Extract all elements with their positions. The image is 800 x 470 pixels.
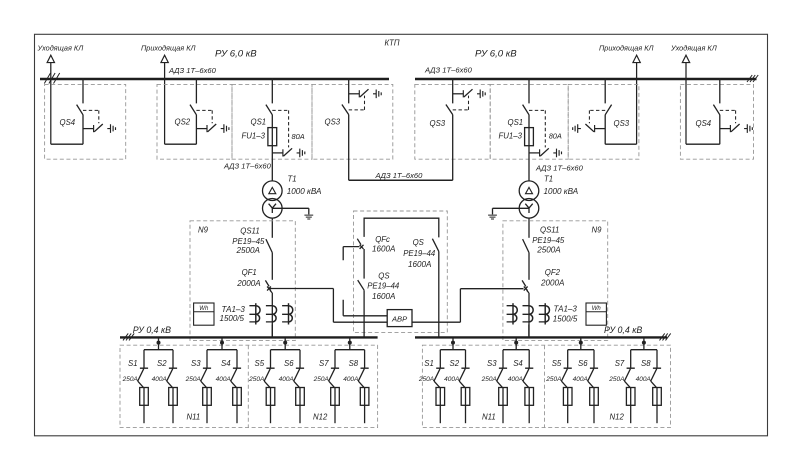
svg-text:S3: S3 [487,359,497,368]
svg-text:РУ 6,0 кВ: РУ 6,0 кВ [475,49,517,60]
svg-text:QS11: QS11 [240,226,259,235]
svg-text:АДЗ 1Т–6х60: АДЗ 1Т–6х60 [168,66,217,75]
svg-text:АДЗ 1Т–6х60: АДЗ 1Т–6х60 [223,162,272,171]
svg-text:S5: S5 [255,359,265,368]
svg-text:S2: S2 [450,359,460,368]
svg-text:1600А: 1600А [408,260,431,269]
svg-text:N12: N12 [313,412,328,421]
svg-text:S6: S6 [578,359,588,368]
svg-text:Приходящая КЛ: Приходящая КЛ [599,43,655,52]
svg-text:1600А: 1600А [372,292,395,301]
svg-text:S2: S2 [157,359,167,368]
svg-text:QS3: QS3 [430,119,446,128]
svg-text:80А: 80А [549,132,562,141]
svg-text:Уходящая КЛ: Уходящая КЛ [670,43,718,52]
svg-text:FU1–3: FU1–3 [499,131,523,140]
svg-text:S8: S8 [641,359,651,368]
svg-text:400А: 400А [573,376,588,383]
svg-text:N12: N12 [610,412,625,421]
svg-text:1000 кВА: 1000 кВА [287,187,322,196]
svg-text:QF1: QF1 [242,268,257,277]
svg-text:1500/5: 1500/5 [553,314,578,323]
svg-text:QF2: QF2 [545,268,561,277]
svg-text:QS1: QS1 [251,117,267,126]
svg-text:Уходящая КЛ: Уходящая КЛ [37,43,85,52]
svg-text:250А: 250А [545,376,561,383]
svg-text:400А: 400А [279,376,294,383]
svg-text:S5: S5 [552,359,562,368]
svg-text:S6: S6 [284,359,294,368]
svg-text:Wh: Wh [592,306,602,312]
svg-text:250А: 250А [481,376,497,383]
svg-text:N11: N11 [187,412,201,421]
svg-text:S4: S4 [221,359,231,368]
svg-text:400А: 400А [444,376,459,383]
svg-text:РЕ19–44: РЕ19–44 [367,282,400,291]
svg-text:QS4: QS4 [60,118,76,127]
svg-text:400А: 400А [152,376,167,383]
svg-text:S7: S7 [615,359,625,368]
svg-text:QS: QS [413,238,425,247]
svg-text:QS: QS [378,271,390,280]
svg-text:АДЗ 1Т–6х60: АДЗ 1Т–6х60 [535,163,584,172]
svg-text:250А: 250А [418,376,434,383]
svg-text:2000А: 2000А [236,279,260,288]
svg-text:Приходящая КЛ: Приходящая КЛ [141,43,197,52]
svg-text:Т1: Т1 [544,175,553,184]
svg-text:S1: S1 [424,359,434,368]
svg-text:РЕ19–45: РЕ19–45 [232,237,265,246]
svg-text:АДЗ 1Т–6х60: АДЗ 1Т–6х60 [375,171,424,180]
svg-text:S4: S4 [513,359,523,368]
svg-text:S7: S7 [319,359,329,368]
svg-text:400А: 400А [636,376,651,383]
svg-text:QS11: QS11 [540,225,559,234]
svg-text:250А: 250А [122,376,138,383]
svg-text:Wh: Wh [199,306,209,312]
svg-text:S8: S8 [349,359,359,368]
svg-text:QS2: QS2 [175,118,191,127]
svg-text:2500А: 2500А [236,246,260,255]
svg-text:QS3: QS3 [325,118,341,127]
svg-text:КТП: КТП [384,39,399,48]
svg-text:250А: 250А [185,376,201,383]
svg-text:РУ 6,0 кВ: РУ 6,0 кВ [215,49,257,60]
svg-text:РЕ19–44: РЕ19–44 [403,249,436,258]
svg-text:QS4: QS4 [696,119,712,128]
svg-text:N11: N11 [482,412,496,421]
svg-text:РЕ19–45: РЕ19–45 [532,236,565,245]
svg-text:QS3: QS3 [614,119,630,128]
svg-text:РУ 0,4 кВ: РУ 0,4 кВ [604,325,642,335]
svg-text:QFс: QFс [375,235,390,244]
svg-text:QS1: QS1 [508,118,524,127]
svg-text:400А: 400А [343,376,358,383]
svg-text:400А: 400А [508,376,523,383]
svg-text:АВР: АВР [391,314,408,323]
svg-text:1000 кВА: 1000 кВА [544,187,579,196]
svg-text:S3: S3 [191,359,201,368]
svg-text:РУ 0,4 кВ: РУ 0,4 кВ [133,325,171,335]
svg-text:2500А: 2500А [536,246,560,255]
svg-text:S1: S1 [128,359,138,368]
svg-text:FU1–3: FU1–3 [242,132,266,141]
svg-text:N9: N9 [592,225,603,234]
svg-text:250А: 250А [313,376,329,383]
svg-text:ТА1–3: ТА1–3 [554,304,578,313]
svg-text:АДЗ 1Т–6х60: АДЗ 1Т–6х60 [424,65,473,74]
svg-text:ТА1–3: ТА1–3 [222,305,246,314]
svg-text:Т1: Т1 [288,175,297,184]
svg-text:1500/5: 1500/5 [220,314,245,323]
svg-text:1600А: 1600А [372,244,395,253]
svg-text:80А: 80А [292,132,305,141]
svg-text:250А: 250А [608,376,624,383]
svg-text:400А: 400А [216,376,231,383]
svg-text:250А: 250А [248,376,264,383]
svg-text:N9: N9 [198,225,209,234]
svg-text:2000А: 2000А [540,278,564,287]
